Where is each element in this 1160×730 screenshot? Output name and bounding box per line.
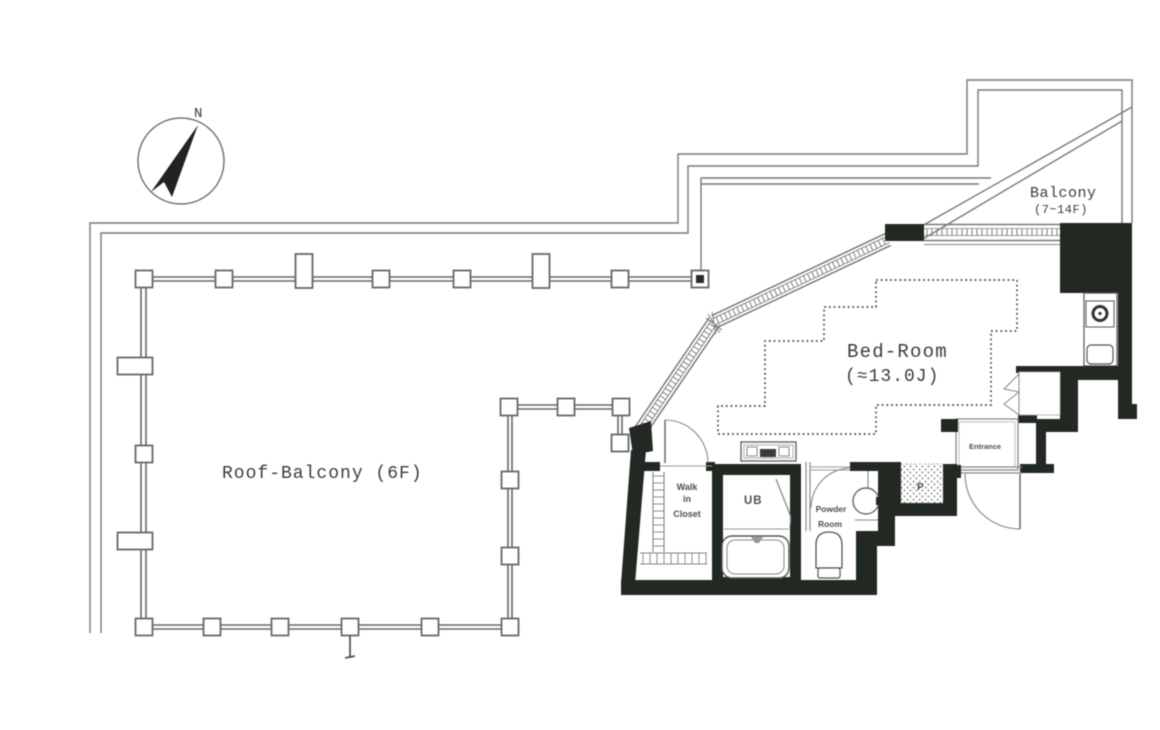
svg-text:Roof-Balcony (6F): Roof-Balcony (6F) [222, 464, 423, 484]
svg-text:N: N [194, 106, 202, 122]
svg-text:Walk: Walk [677, 482, 699, 492]
svg-text:Room: Room [818, 519, 843, 529]
svg-text:in: in [683, 494, 691, 504]
svg-text:(≈13.0J): (≈13.0J) [845, 367, 939, 387]
svg-text:(7~14F): (7~14F) [1034, 203, 1088, 217]
svg-text:Entrance: Entrance [969, 442, 1001, 451]
svg-text:P: P [917, 482, 924, 493]
svg-text:Powder: Powder [816, 504, 847, 514]
svg-text:UB: UB [744, 495, 763, 507]
svg-text:Closet: Closet [673, 509, 701, 519]
svg-text:Balcony: Balcony [1030, 185, 1097, 202]
svg-text:Bed-Room: Bed-Room [847, 341, 948, 363]
